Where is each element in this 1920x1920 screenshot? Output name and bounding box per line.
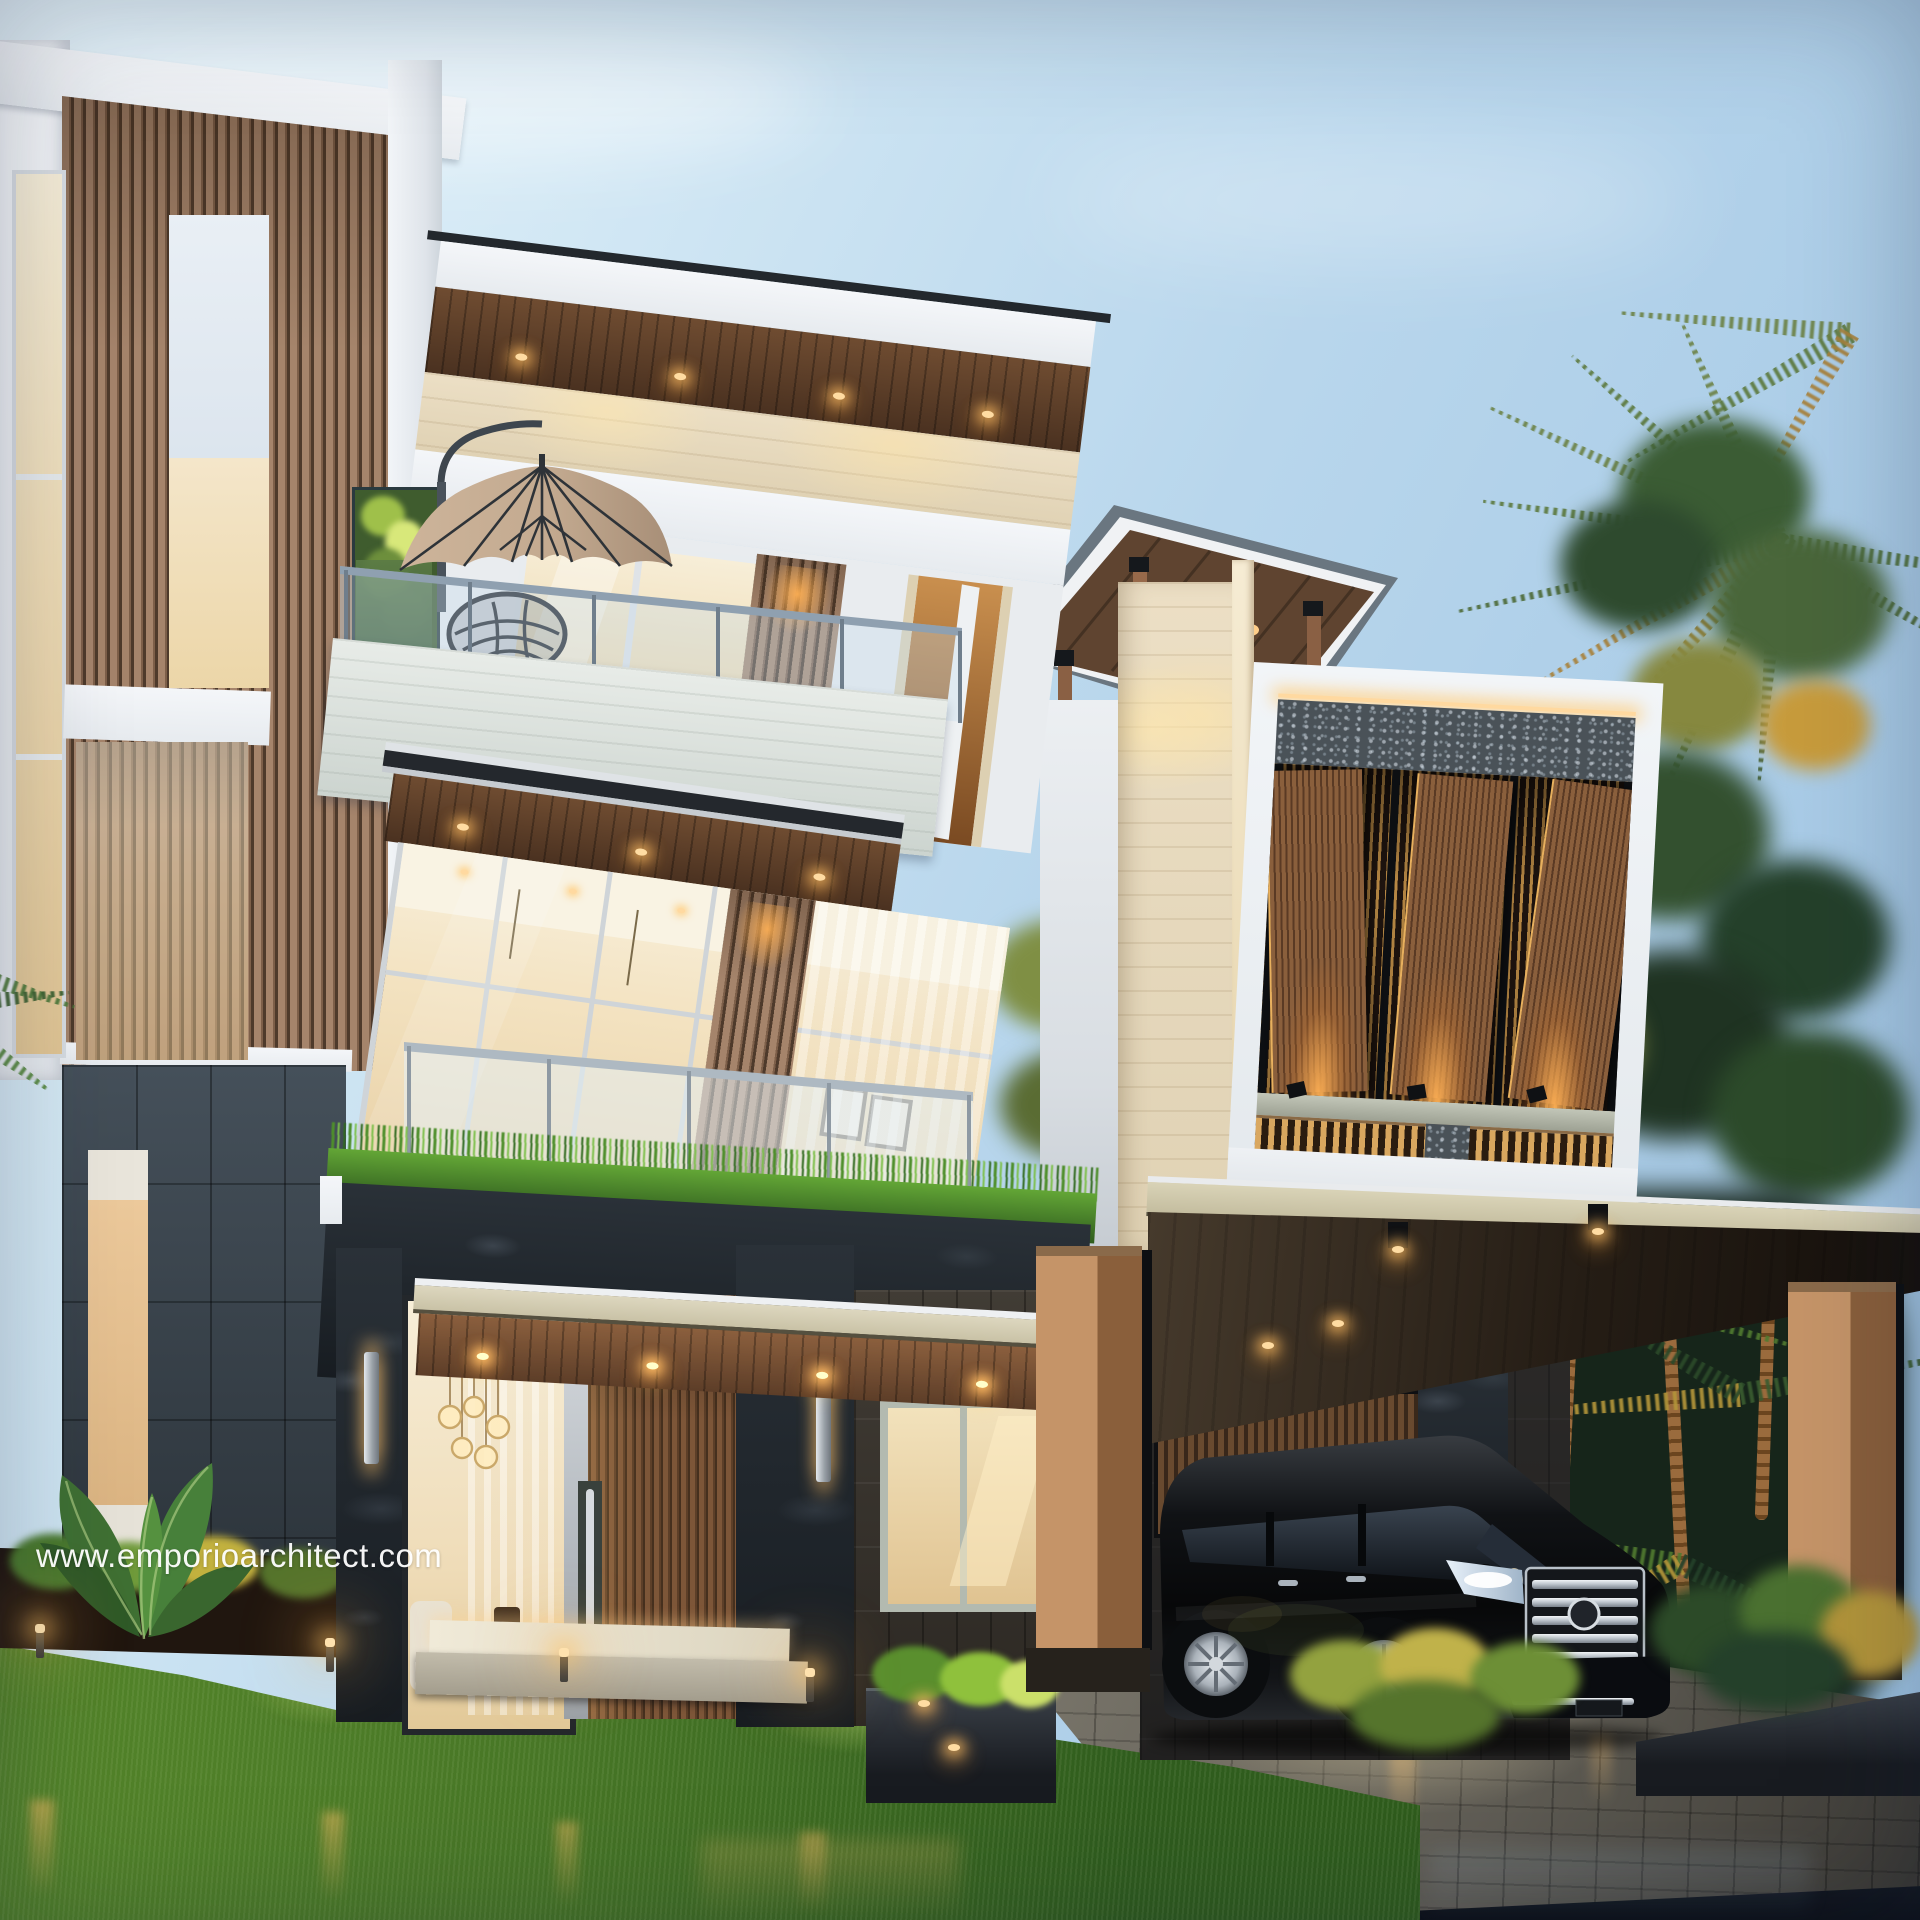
soffit-downlight [456,823,469,832]
recessed-downlight [1332,1320,1344,1327]
headlight-core [1464,1572,1512,1588]
right-planter-plants [1640,1545,1920,1715]
tan-accent-strip [88,1150,148,1200]
soffit-downlight [981,410,994,418]
sky-reflection [1430,1850,1810,1920]
soffit-downlight [515,353,528,361]
porch-side-window [880,1400,1062,1612]
soffit-downlight [635,848,648,857]
garden-light [326,1646,334,1672]
louvre-window-box [1225,662,1664,1243]
carport-column-left [1036,1246,1142,1660]
granite-pier [1424,1124,1470,1160]
van-pillar [1358,1504,1366,1566]
cube-downlight [1392,1246,1404,1253]
fin-uplight-glow [1507,896,1612,1111]
column-plinth [1026,1648,1150,1692]
wall-sconce [364,1352,379,1464]
porch-glow-reflection [700,1840,960,1920]
road-light-reflection [556,1822,578,1906]
palm-frond [0,961,79,1020]
recessed-downlight [1262,1342,1274,1349]
van-pillar [1266,1512,1274,1566]
left-palm-leaves [0,920,90,1090]
planter-mini-light [948,1744,960,1751]
right-hedge [1290,1620,1590,1760]
foliage-blob [1560,500,1720,630]
fin-uplight-glow [1389,890,1494,1105]
road-light-reflection [322,1812,344,1902]
soffit-downlight [813,873,826,882]
tower-window-sky [169,215,269,458]
cube-downlight [1592,1228,1604,1235]
palm-frond [0,1022,55,1099]
garden-light [806,1676,814,1702]
window-mullion [16,474,62,480]
soffit-downlight [976,1380,988,1388]
louvre-opening [1257,763,1632,1111]
shrub [1350,1680,1500,1750]
van-door-handle [1278,1580,1298,1586]
tower-lower-slats [76,742,248,1060]
screen-lamp-glow [721,899,806,1008]
pendant-cube-light [1588,1204,1608,1230]
soffit-downlight [816,1372,828,1380]
banana-plant [22,1385,272,1645]
door-handle-bar [586,1489,594,1643]
tower-window-warm [169,458,269,688]
soffit-downlight [833,392,846,400]
soffit-downlight [646,1362,658,1370]
fin-uplight-glow [1271,884,1376,1099]
palm-frond [1620,300,1851,346]
foliage-blob [1760,680,1870,770]
soffit-downlight [674,372,687,380]
road-light-reflection [30,1800,54,1896]
van-door-handle [1346,1576,1366,1582]
villa-render-scene: www.emporioarchitect.com [0,0,1920,1920]
garden-light [560,1656,568,1682]
window-mullion [16,754,62,760]
watermark-text: www.emporioarchitect.com [36,1537,442,1575]
soffit-downlight [477,1353,489,1361]
planter-mini-light [918,1700,930,1707]
tower-white-band [63,684,271,745]
pendant-cube-light [1388,1222,1408,1248]
foliage-blob [1700,1631,1850,1711]
garden-light [36,1632,44,1658]
spotlight-fixture [1407,1084,1427,1101]
umbrella-finial [539,454,545,468]
planter-end-cap [320,1176,342,1224]
travertine-box [1118,582,1234,1250]
carport-steel-post [1142,1250,1152,1650]
porch-stone-pillar-left [336,1248,402,1722]
